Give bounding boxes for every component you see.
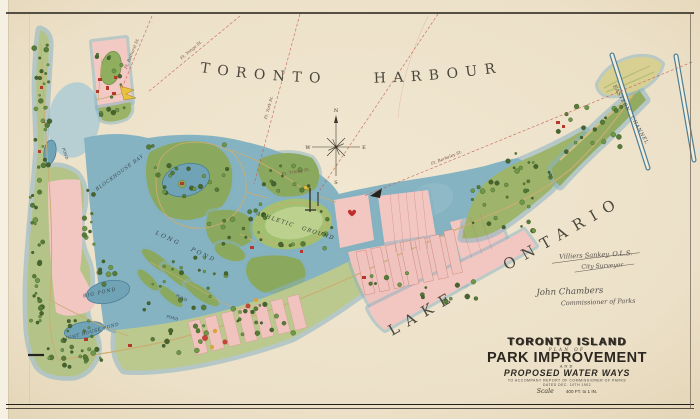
tree: [574, 141, 577, 144]
tree: [523, 183, 525, 185]
tree: [591, 141, 595, 145]
title-line-accompany: TO ACCOMPANY REPORT OF COMMISSIONER OF P…: [508, 379, 626, 383]
tree: [472, 222, 474, 224]
tree: [46, 163, 51, 168]
tree: [91, 192, 95, 196]
tree: [231, 306, 236, 311]
tree: [95, 347, 100, 352]
tree: [86, 189, 89, 192]
tree: [123, 107, 125, 109]
map-svg: Ft. Bathurst St. Ft. Yonge St. Ft. York …: [0, 0, 700, 419]
tree: [112, 69, 116, 73]
tree: [564, 150, 568, 154]
tree: [151, 337, 155, 341]
tree: [196, 329, 200, 333]
tree: [152, 283, 154, 285]
tree: [35, 292, 37, 294]
tree: [31, 194, 34, 197]
tree: [215, 188, 219, 192]
tree: [70, 351, 73, 354]
tree: [506, 196, 509, 199]
tree: [527, 180, 530, 183]
tree: [96, 53, 99, 56]
tree: [532, 161, 534, 163]
tree: [198, 339, 202, 343]
tree: [194, 348, 199, 353]
tree: [471, 198, 474, 201]
tree: [38, 57, 41, 60]
tree: [93, 243, 96, 246]
tree: [112, 271, 117, 276]
tree: [163, 265, 166, 268]
tree: [504, 183, 508, 187]
tree: [604, 117, 607, 120]
tree: [193, 256, 197, 260]
tree: [36, 321, 39, 324]
tree: [291, 164, 295, 168]
tree: [99, 113, 103, 117]
tree: [483, 203, 486, 206]
tree: [487, 222, 491, 226]
tree: [260, 238, 263, 241]
tree: [515, 169, 520, 174]
tree: [568, 118, 572, 122]
tree: [68, 365, 72, 369]
tree: [527, 220, 531, 224]
tree: [70, 345, 74, 349]
tree: [106, 107, 111, 112]
tree: [230, 217, 235, 222]
scale-label: Scale: [537, 388, 554, 395]
tree: [40, 311, 44, 315]
central-parcel: [334, 194, 374, 248]
tree: [224, 271, 228, 275]
tree: [237, 320, 239, 322]
scale-value: 400 FT. to 1 IN.: [566, 389, 597, 394]
tree: [39, 319, 42, 322]
tree: [163, 185, 166, 188]
tree: [44, 72, 47, 75]
compass-s: S: [334, 180, 338, 186]
tree: [242, 227, 245, 230]
tree: [88, 327, 90, 329]
tree: [513, 167, 515, 169]
tree: [29, 196, 32, 199]
tree: [228, 236, 231, 239]
tree: [82, 216, 87, 221]
tree: [38, 298, 43, 303]
tree: [222, 143, 227, 148]
tree: [534, 164, 539, 169]
tree: [254, 321, 257, 324]
tree: [34, 138, 37, 141]
tree: [182, 194, 186, 198]
tree: [154, 166, 156, 168]
tree: [593, 128, 597, 132]
tree: [291, 330, 296, 335]
tree: [169, 332, 172, 335]
tree: [616, 134, 621, 139]
tree: [42, 145, 44, 147]
tree: [248, 210, 252, 214]
tree: [580, 136, 583, 139]
tree: [33, 294, 36, 297]
tree: [202, 174, 206, 178]
tree: [29, 319, 32, 322]
tree: [37, 190, 42, 195]
tree: [187, 167, 191, 171]
tree: [601, 139, 606, 144]
tree: [221, 225, 225, 229]
tree: [263, 302, 268, 307]
tree: [193, 187, 197, 191]
tree: [527, 205, 530, 208]
tree: [307, 184, 310, 187]
tree: [259, 304, 261, 306]
tree: [102, 260, 105, 263]
tree: [146, 145, 151, 150]
tree: [90, 335, 93, 338]
tree: [548, 171, 551, 174]
tree: [278, 242, 283, 247]
tree: [143, 308, 146, 311]
tree: [37, 261, 42, 266]
tree: [251, 310, 255, 314]
tree: [61, 348, 64, 351]
tree: [44, 128, 47, 131]
tree: [35, 285, 38, 288]
tree: [90, 212, 93, 215]
tree: [87, 348, 91, 352]
tree: [528, 161, 530, 163]
tree: [172, 260, 175, 263]
tree: [35, 278, 40, 283]
tree: [198, 269, 201, 272]
tree: [494, 216, 498, 220]
tree: [225, 167, 229, 171]
compass-e: E: [362, 145, 366, 151]
tree: [325, 217, 329, 221]
tree: [421, 295, 425, 299]
tree: [47, 64, 50, 67]
tree: [274, 314, 279, 319]
tree: [38, 244, 41, 247]
tree: [495, 181, 500, 186]
tree: [48, 357, 51, 360]
tree: [320, 210, 322, 212]
tree: [107, 56, 111, 60]
tree: [271, 181, 276, 186]
tree: [111, 110, 116, 115]
tree: [147, 301, 151, 305]
tree: [38, 98, 43, 103]
tree: [120, 84, 122, 86]
tree: [168, 174, 171, 177]
tree: [300, 188, 305, 193]
tree: [102, 282, 107, 287]
tree: [67, 319, 71, 323]
tree: [31, 221, 34, 224]
tree: [207, 222, 211, 226]
tree: [110, 96, 113, 99]
tree: [405, 271, 409, 275]
tree: [37, 166, 40, 169]
tree: [549, 174, 552, 177]
tree: [115, 108, 119, 112]
tree: [62, 363, 67, 368]
tree: [384, 275, 389, 280]
tree: [489, 180, 494, 185]
tree: [277, 189, 280, 192]
tree: [269, 169, 272, 172]
tree: [515, 152, 517, 154]
tree: [40, 69, 44, 73]
tree: [526, 189, 529, 192]
compass-w: W: [305, 145, 311, 151]
tree: [291, 243, 295, 247]
tree: [41, 240, 45, 244]
tree: [192, 306, 196, 310]
tree: [106, 272, 111, 277]
tree: [201, 305, 206, 310]
tree: [207, 287, 210, 290]
tree: [151, 144, 154, 147]
tree: [323, 246, 327, 250]
tree: [91, 351, 96, 356]
tree: [193, 324, 198, 329]
tree: [41, 119, 45, 123]
tree: [556, 129, 561, 134]
tree: [163, 280, 166, 283]
tree: [203, 270, 206, 273]
tree: [68, 324, 72, 328]
tree: [532, 229, 536, 233]
tree: [82, 233, 87, 238]
tree: [506, 159, 511, 164]
tree: [520, 200, 525, 205]
tree: [83, 354, 87, 358]
compass-n: N: [334, 108, 339, 114]
tree: [31, 251, 34, 254]
tree: [180, 266, 183, 269]
tree: [282, 321, 286, 325]
tree: [177, 350, 182, 355]
tree: [241, 333, 244, 336]
tree: [581, 126, 585, 130]
tree: [87, 320, 90, 323]
tree: [156, 173, 161, 178]
tree: [47, 81, 50, 84]
tree: [163, 190, 167, 194]
tree: [209, 295, 212, 298]
tree: [398, 283, 402, 287]
tree: [159, 285, 161, 287]
tree: [32, 274, 36, 278]
tree: [279, 165, 282, 168]
tree: [179, 270, 184, 275]
tree: [223, 219, 226, 222]
tree: [301, 241, 306, 246]
tree: [531, 197, 533, 199]
tree: [502, 225, 506, 229]
tree: [222, 242, 225, 245]
tree: [480, 189, 485, 194]
tree: [293, 182, 297, 186]
tree: [47, 347, 50, 350]
tree: [204, 331, 209, 336]
tree: [175, 167, 178, 170]
tree: [30, 203, 35, 208]
tree: [44, 47, 49, 52]
tree: [243, 309, 247, 313]
tree: [98, 271, 102, 275]
tree: [167, 163, 172, 168]
tree: [213, 273, 216, 276]
tree: [491, 188, 495, 192]
tree: [208, 180, 212, 184]
tree: [38, 306, 43, 311]
tree: [34, 223, 36, 225]
tree: [519, 166, 523, 170]
tree: [90, 221, 92, 223]
tree: [34, 206, 37, 209]
tree: [108, 265, 113, 270]
tree: [425, 286, 427, 288]
tree: [32, 46, 37, 51]
tree: [35, 76, 39, 80]
tree: [39, 94, 41, 96]
tree: [162, 344, 165, 347]
tree: [79, 355, 82, 358]
title-line-proposed-water-ways: PROPOSED WATER WAYS: [504, 368, 630, 378]
tree: [477, 185, 481, 189]
tree: [611, 132, 616, 137]
tree: [99, 357, 101, 359]
title-line-dated: DATED DEC. 10TH 1902: [543, 383, 591, 387]
tree: [520, 225, 522, 227]
tree: [245, 236, 248, 239]
tree: [43, 158, 47, 162]
tree: [600, 120, 605, 125]
tree: [202, 324, 205, 327]
tree: [41, 163, 46, 168]
tree: [330, 226, 333, 229]
tree: [198, 184, 203, 189]
tree: [46, 44, 49, 47]
tree: [37, 178, 42, 183]
tree: [262, 182, 266, 186]
tree: [259, 203, 262, 206]
tree: [369, 282, 373, 286]
map-sheet: Ft. Bathurst St. Ft. Yonge St. Ft. York …: [0, 0, 700, 419]
tree: [88, 230, 91, 233]
tree: [374, 282, 377, 285]
tree: [255, 331, 260, 336]
tree: [164, 339, 169, 344]
tree: [258, 231, 260, 233]
tree: [81, 350, 84, 353]
tree: [61, 356, 66, 361]
tree: [471, 189, 475, 193]
tree: [74, 319, 77, 322]
tree: [260, 322, 263, 325]
tree: [34, 107, 38, 111]
tree: [45, 123, 50, 128]
tree: [38, 76, 42, 80]
tree: [370, 274, 373, 277]
tree: [67, 330, 69, 332]
tree: [474, 297, 478, 301]
tree: [45, 106, 48, 109]
tree: [249, 217, 253, 221]
tree: [222, 174, 225, 177]
tree: [254, 307, 258, 311]
tree: [172, 268, 174, 270]
tree: [270, 328, 274, 332]
tree: [618, 144, 623, 149]
sheet-left-margin: [0, 0, 8, 419]
tree: [82, 226, 87, 231]
tree: [43, 83, 45, 85]
tree: [614, 108, 618, 112]
tree: [118, 74, 122, 78]
